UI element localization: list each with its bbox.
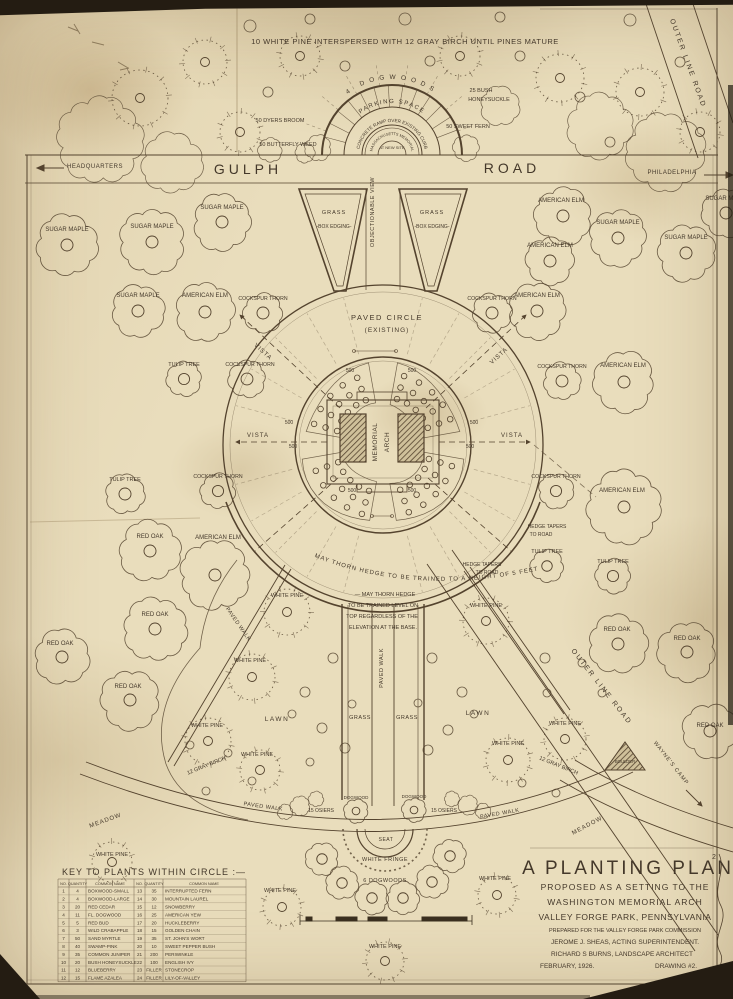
key-table-cell: 7 xyxy=(62,936,65,941)
headquarters-arrow-icon xyxy=(37,165,44,171)
plant-marker xyxy=(347,393,353,399)
deciduous-tree xyxy=(586,469,661,545)
label-grass-left: GRASS xyxy=(322,210,346,216)
deciduous-tree xyxy=(180,541,250,610)
shrub-mass xyxy=(290,796,310,816)
label-white-pine-6: WHITE PINE xyxy=(549,721,581,727)
label-american-elm-2: AMERICAN ELM xyxy=(527,243,573,249)
label-meadow-l: MEADOW xyxy=(89,812,123,829)
key-table-cell: 23 xyxy=(137,968,143,973)
plant-marker xyxy=(394,396,400,402)
label-hedge-note-4: ELEVATION AT THE BASE. xyxy=(349,625,417,631)
gray-birch-tree xyxy=(224,749,232,757)
label-500-4: 500 xyxy=(470,420,479,426)
key-table-cell: FILLER xyxy=(146,968,162,973)
key-table-cell: 14 xyxy=(137,897,143,902)
deciduous-tree xyxy=(194,194,251,252)
label-red-oak-6: RED OAK xyxy=(673,636,700,642)
label-red-oak-7: RED OAK xyxy=(696,723,723,729)
shrub-mass xyxy=(141,132,204,193)
key-table-cell: 21 xyxy=(137,952,143,957)
key-table-cell: SAND MYRTLE xyxy=(88,936,121,941)
arc-texts: 4 DOGWOODS PARKING SPACE CONCRETE RAMP O… xyxy=(314,74,539,583)
plant-marker xyxy=(415,475,421,481)
pine-tree xyxy=(533,50,587,106)
drawing-date: FEBRUARY, 1926. xyxy=(540,963,595,970)
label-sweet-fern: 50 SWEET FERN xyxy=(446,124,490,130)
gray-birch-tree xyxy=(317,723,327,733)
label-sugar-maple-1: SUGAR MAPLE xyxy=(45,227,88,233)
deciduous-tree xyxy=(533,187,590,245)
key-table-cell: SWAMP-PINK xyxy=(88,944,118,949)
shrub-mass xyxy=(625,113,705,192)
label-white-pine-9: WHITE PINE xyxy=(264,888,296,894)
deciduous-tree xyxy=(305,843,337,875)
drawing-prepared-for: PREPARED FOR THE VALLEY FORGE PARK COMMI… xyxy=(549,928,701,934)
label-headquarters: HEADQUARTERS xyxy=(67,164,123,170)
key-table-cell: 22 xyxy=(137,960,143,965)
label-white-pine-4: WHITE PINE xyxy=(241,752,273,758)
key-table-cell: 4 xyxy=(62,912,65,917)
key-table-cell: COMMON JUNIPER xyxy=(88,952,131,957)
pine-tree xyxy=(613,64,667,120)
key-table-cell: 200 xyxy=(150,952,158,957)
key-table-cell: 12 xyxy=(75,968,81,973)
key-table-cell: 35 xyxy=(151,889,157,894)
key-table-cell: WILD CRABAPPLE xyxy=(88,928,128,933)
scan-edge-right xyxy=(728,85,733,725)
label-6-dogwoods: 6 DOGWOODS xyxy=(363,878,407,884)
key-table-cell: SWEET PEPPER BUSH xyxy=(165,944,215,949)
label-white-pine-11: WHITE PINE xyxy=(369,944,401,950)
shrub-mass xyxy=(308,791,324,807)
deciduous-tree xyxy=(593,351,654,413)
drawing-number: DRAWING #2. xyxy=(655,963,697,970)
pencil-scribbles xyxy=(68,24,129,70)
key-table-cell: RED CEDAR xyxy=(88,905,116,910)
plant-marker xyxy=(328,393,334,399)
shrub-mass xyxy=(458,795,478,815)
plant-marker xyxy=(401,373,407,379)
grass-islands xyxy=(299,189,467,291)
plant-marker xyxy=(421,398,427,404)
label-red-oak-3: RED OAK xyxy=(46,641,73,647)
label-sugar-maple-3: SUGAR MAPLE xyxy=(200,205,243,211)
deciduous-tree xyxy=(682,704,733,758)
key-table-cell: 6 xyxy=(62,928,65,933)
title-block: A PLANTING PLAN PROPOSED AS A SETTING TO… xyxy=(522,848,733,972)
key-table-cell: PERIWINKLE xyxy=(165,952,193,957)
key-table-cell: 1 xyxy=(62,889,65,894)
gray-birch-tree xyxy=(605,137,615,147)
pine-tree xyxy=(179,37,231,88)
deciduous-tree xyxy=(35,629,90,684)
label-lawn-l: LAWN xyxy=(265,716,290,723)
plant-marker xyxy=(422,466,428,472)
gray-birch-tree xyxy=(186,741,194,749)
key-table-cell: BOXWOOD-LARGE xyxy=(88,897,130,902)
shrub-mass xyxy=(452,135,479,162)
key-table-cell: 3 xyxy=(62,905,65,910)
label-500-7: 500 xyxy=(348,488,357,494)
label-american-elm-1: AMERICAN ELM xyxy=(538,198,584,204)
label-white-pine-1: WHITE PINE xyxy=(271,593,303,599)
label-cockspur-3: COCKSPUR THORN xyxy=(225,362,274,368)
deciduous-tree xyxy=(36,214,98,276)
plant-marker xyxy=(313,468,319,474)
label-tulip-tree-4: TULIP TREE xyxy=(597,559,629,565)
planting-bed xyxy=(302,452,376,520)
label-gulph: GULPH xyxy=(214,161,282,177)
drawing-subtitle-2: WASHINGTON MEMORIAL ARCH xyxy=(547,897,702,907)
label-red-oak-5: RED OAK xyxy=(603,627,630,633)
plant-marker xyxy=(398,385,404,391)
label-osiers-r: 15 OSIERS xyxy=(431,808,458,814)
planting-plan-drawing: 10 WHITE PINE INTERSPERSED WITH 12 GRAY … xyxy=(0,0,733,999)
key-table-cell: 12 xyxy=(61,976,67,981)
plant-marker xyxy=(340,469,346,475)
gray-birch-tree xyxy=(305,14,315,24)
label-500-2: 500 xyxy=(408,368,417,374)
plant-marker xyxy=(406,509,412,515)
label-dyers-broom: 50 DYERS BROOM xyxy=(256,118,305,124)
label-waynes-camp: WAYNE'S CAMP xyxy=(652,740,690,786)
paper-creases xyxy=(30,2,237,522)
plant-marker xyxy=(413,407,419,413)
label-500-3: 500 xyxy=(285,420,294,426)
gray-birch-tree xyxy=(306,758,314,766)
seat-area xyxy=(343,829,427,871)
deciduous-tree xyxy=(176,283,235,342)
label-grass-strip-r: GRASS xyxy=(396,715,418,721)
key-table-cell: 19 xyxy=(137,936,143,941)
plant-marker xyxy=(318,406,324,412)
gray-birch-tree xyxy=(300,687,310,697)
key-table-cell: 13 xyxy=(137,889,143,894)
plant-marker xyxy=(359,386,365,392)
deciduous-tree xyxy=(326,866,359,899)
label-paved-circle: PAVED CIRCLE xyxy=(351,313,423,322)
label-bush-honeysuckle: HONEYSUCKLE xyxy=(468,97,510,103)
plant-marker xyxy=(331,495,337,501)
deciduous-tree xyxy=(386,881,420,915)
key-table-cell: 4 xyxy=(76,889,79,894)
key-table-cell: 20 xyxy=(75,905,81,910)
label-sugar-maple-7: SUGAR MAPLE xyxy=(116,293,159,299)
key-table-cell: BOXWOOD-SMALL xyxy=(88,889,130,894)
deciduous-tree xyxy=(119,519,181,580)
key-table-cell: 15 xyxy=(137,905,143,910)
label-dogwood-r: DOGWOOD xyxy=(402,794,427,799)
key-table-cell: HUCKLEBERRY xyxy=(165,920,199,925)
key-table-cell: 2 xyxy=(62,897,65,902)
gray-birch-tree xyxy=(263,87,273,97)
key-table-cell: 9 xyxy=(62,952,65,957)
gray-birch-tree xyxy=(427,653,437,663)
key-table-cell: 5 xyxy=(62,920,65,925)
gray-birch-tree xyxy=(457,687,467,697)
label-existing: (EXISTING) xyxy=(365,327,410,334)
key-table-cell: 20 xyxy=(151,920,157,925)
gray-birch-tree xyxy=(244,20,256,32)
arch-pier-east xyxy=(398,414,424,462)
lawn-boundary-left xyxy=(161,560,248,820)
drawing-subtitle-3: VALLEY FORGE PARK, PENNSYLVANIA xyxy=(539,912,712,922)
plant-marker xyxy=(425,425,431,431)
label-grass-right: GRASS xyxy=(420,210,444,216)
arch-pier-west xyxy=(340,414,366,462)
label-cockspur-1: COCKSPUR THORN xyxy=(238,296,287,302)
plant-marker xyxy=(433,491,439,497)
plant-marker xyxy=(410,390,416,396)
key-table-cell: 11 xyxy=(75,912,80,917)
gray-birch-tree xyxy=(515,51,525,61)
key-table-cell: 20 xyxy=(75,960,81,965)
label-500-1: 500 xyxy=(346,368,355,374)
label-hedge-note-3: TOP REGARDLESS OF THE xyxy=(346,614,418,620)
plant-marker xyxy=(323,425,329,431)
key-table-cell: 10 xyxy=(151,944,157,949)
label-paved-walk-diag-l: PAVED WALK xyxy=(224,606,252,642)
label-box-edging-right: -BOX EDGING- xyxy=(414,224,449,230)
pine-tree xyxy=(217,108,263,156)
label-tulip-tree-1: TULIP TREE xyxy=(168,362,200,368)
key-table-cell: 8 xyxy=(62,944,65,949)
deciduous-tree xyxy=(416,865,449,898)
central-paved-walk xyxy=(372,605,394,806)
deciduous-tree xyxy=(124,597,188,660)
deciduous-tree xyxy=(657,225,715,282)
plant-marker xyxy=(321,483,327,489)
deciduous-tree xyxy=(100,671,159,731)
key-table-header: NO. xyxy=(136,882,143,886)
key-table-cell: BUSH HONEYSUCKLE xyxy=(88,960,137,965)
key-table-cell: 30 xyxy=(151,897,157,902)
gray-birch-tree xyxy=(425,56,435,66)
label-white-pine-7: WHITE PINE xyxy=(492,741,524,747)
label-white-pine-10: WHITE PINE xyxy=(479,876,511,882)
key-table-cell: 15 xyxy=(75,976,81,981)
deciduous-tree xyxy=(120,210,184,275)
key-table-cell: 40 xyxy=(75,944,81,949)
label-hedge-tapers-1a: HEDGE TAPERS xyxy=(528,524,567,530)
key-to-plants-table: KEY TO PLANTS WITHIN CIRCLE :— NO.QUANTI… xyxy=(58,867,246,982)
label-philadelphia: PHILADELPHIA xyxy=(647,170,696,176)
key-table-cell: 20 xyxy=(137,944,143,949)
key-table-cell: 24 xyxy=(137,976,143,981)
label-hedge-note-1: — MAY THORN HEDGE xyxy=(355,592,416,598)
label-arch: ARCH xyxy=(384,432,391,452)
walks xyxy=(80,189,633,832)
plant-marker xyxy=(443,478,449,484)
label-lawn-r: LAWN xyxy=(466,710,491,717)
gray-birch-tree xyxy=(348,700,356,708)
label-white-pine-3: WHITE PINE xyxy=(191,723,223,729)
key-table-cell: AMERICAN YEW xyxy=(165,912,202,917)
deciduous-tree xyxy=(433,840,466,873)
gray-birch-tree xyxy=(495,12,505,22)
key-table-header: NO. xyxy=(60,882,67,886)
outer-line-road-top xyxy=(645,1,733,158)
scan-edge-bottom xyxy=(30,995,590,999)
label-500-6: 500 xyxy=(466,444,475,450)
key-table-cell: 25 xyxy=(151,912,157,917)
scale-bar xyxy=(300,915,472,925)
plant-marker xyxy=(421,502,427,508)
label-american-elm-4: AMERICAN ELM xyxy=(514,293,560,299)
label-cockspur-4: COCKSPUR THORN xyxy=(537,364,586,370)
key-table-cell: 10 xyxy=(61,960,67,965)
label-vista-e: VISTA xyxy=(501,433,523,439)
drawing-architect: RICHARD S BURNS, LANDSCAPE ARCHITECT xyxy=(551,951,693,958)
deciduous-tree xyxy=(355,881,389,914)
key-table-cell: FL. DOGWOOD xyxy=(88,912,122,917)
key-table-cell: FLAME AZALEA xyxy=(88,976,123,981)
gray-birch-tree xyxy=(443,725,453,735)
plant-marker xyxy=(366,488,372,494)
key-table-cell: 4 xyxy=(76,897,79,902)
label-paved-walk-bottom-r: PAVED WALK xyxy=(480,808,520,821)
key-table-cell: 3 xyxy=(76,928,79,933)
label-tulip-tree-3: TULIP TREE xyxy=(531,549,563,555)
plant-marker xyxy=(426,456,432,462)
key-table-cell: MOUNTAIN LAUREL xyxy=(165,897,209,902)
label-tulip-tree-2: TULIP TREE xyxy=(109,477,141,483)
label-american-elm-3: AMERICAN ELM xyxy=(182,293,228,299)
plant-marker xyxy=(416,380,422,386)
key-table-cell: ENGLISH IVY xyxy=(165,960,194,965)
gray-birch-tree xyxy=(540,653,550,663)
label-american-elm-5: AMERICAN ELM xyxy=(600,363,646,369)
key-table-header: COMMON NAME xyxy=(189,882,219,886)
label-gray-birch-l: 12 GRAY BIRCH xyxy=(186,756,227,777)
key-table-header: COMMON NAME xyxy=(95,882,125,886)
label-osiers-l: 15 OSIERS xyxy=(308,808,335,814)
label-red-oak-4: RED OAK xyxy=(114,684,141,690)
deciduous-tree xyxy=(590,210,647,267)
label-butterfly-weed: 50 BUTTERFLY WEED xyxy=(259,142,316,148)
label-at-new-site: AT NEW SITE xyxy=(379,145,405,150)
plant-marker xyxy=(404,401,410,407)
key-table-cell: STONECROP xyxy=(165,968,194,973)
key-table-cell: LILY-OF-VALLEY xyxy=(165,976,200,981)
key-table-title: KEY TO PLANTS WITHIN CIRCLE :— xyxy=(62,867,246,877)
plant-marker xyxy=(353,402,359,408)
label-red-oak-1: RED OAK xyxy=(136,534,163,540)
label-seat: SEAT xyxy=(379,837,394,843)
label-white-pine-2: WHITE PINE xyxy=(234,658,266,664)
deciduous-tree xyxy=(510,283,567,340)
label-grass-strip-l: GRASS xyxy=(349,715,371,721)
drawing-superintendent: JEROME J. SHEAS, ACTING SUPERINTENDENT. xyxy=(551,939,699,946)
key-table-cell: RED BUD xyxy=(88,920,109,925)
key-table-cell: 18 xyxy=(137,928,143,933)
pine-tree xyxy=(108,67,172,130)
key-table-cell: FILLER xyxy=(146,976,162,981)
label-road: ROAD xyxy=(484,160,540,176)
label-hedge-tapers-2a: HEDGE TAPERS xyxy=(463,562,502,568)
gray-birch-tree xyxy=(552,789,560,797)
label-bush-honeysuckle-qty: 25 BUSH xyxy=(470,88,493,94)
gray-birch-tree xyxy=(340,61,350,71)
drawing-title: A PLANTING PLAN xyxy=(522,858,733,879)
label-cockspur-6: COCKSPUR THORN xyxy=(531,474,580,480)
plant-marker xyxy=(407,482,413,488)
label-american-elm-7: AMERICAN ELM xyxy=(195,535,241,541)
note-pine-birch: 10 WHITE PINE INTERSPERSED WITH 12 GRAY … xyxy=(251,37,559,46)
key-table-cell: GOLDEN CHAIN xyxy=(165,928,200,933)
key-table-cell: INTERRUPTED FERN xyxy=(165,889,211,894)
label-objectionable-view: OBJECTIONABLE VIEW xyxy=(370,177,376,247)
key-table-cell: 35 xyxy=(75,952,81,957)
deciduous-tree xyxy=(589,614,648,673)
key-table-cell: 100 xyxy=(150,960,158,965)
label-paved-walk-center: PAVED WALK xyxy=(379,648,385,688)
key-table-header: QUANTITY xyxy=(68,882,88,886)
key-table-cell: 5 xyxy=(76,920,79,925)
label-boulder: BOULDER xyxy=(615,759,635,764)
label-hedge-note-2: TO BE TRAINED LEVEL ON xyxy=(348,603,418,609)
plant-marker xyxy=(449,463,455,469)
label-outer-line-road-top: OUTER LINE ROAD xyxy=(668,18,707,109)
plant-marker xyxy=(438,460,444,466)
plant-marker xyxy=(339,486,345,492)
key-table-cell: 17 xyxy=(137,920,143,925)
plant-marker xyxy=(359,511,365,517)
key-table-cell: 35 xyxy=(151,936,157,941)
label-meadow-r: MEADOW xyxy=(571,816,604,837)
key-table-header: QUANTITY xyxy=(144,882,164,886)
plant-marker xyxy=(344,505,350,511)
plant-marker xyxy=(402,498,408,504)
shrub-mass xyxy=(567,92,633,160)
gray-birch-tree xyxy=(328,653,338,663)
label-vista-nw: VISTA xyxy=(253,343,273,362)
key-table-cell: 11 xyxy=(61,968,66,973)
key-table-cell: ST. JOHN'S WORT xyxy=(165,936,205,941)
memorial-arch-plaza xyxy=(327,350,439,518)
gray-birch-tree xyxy=(399,13,411,25)
label-red-oak-2: RED OAK xyxy=(141,612,168,618)
white-fringe-ring xyxy=(343,829,427,871)
key-table-cell: BLUEBERRY xyxy=(88,968,116,973)
plant-marker xyxy=(447,416,453,422)
gray-birch-tree xyxy=(202,787,210,795)
label-american-elm-6: AMERICAN ELM xyxy=(599,488,645,494)
label-memorial: MEMORIAL xyxy=(372,423,379,462)
key-table-cell: SNOWBERRY xyxy=(165,905,195,910)
key-table-cell: 50 xyxy=(75,936,81,941)
hedge-lines xyxy=(342,604,424,800)
label-box-edging-left: -BOX EDGING- xyxy=(316,224,351,230)
plant-marker xyxy=(334,428,340,434)
label-white-pine-8: WHITE PINE xyxy=(96,852,128,858)
plant-marker xyxy=(311,421,317,427)
label-vista-ne: VISTA xyxy=(489,347,509,366)
label-sugar-maple-4: SUGAR MAPLE xyxy=(596,220,639,226)
plant-marker xyxy=(340,383,346,389)
deciduous-tree xyxy=(657,623,715,683)
label-cockspur-5: COCKSPUR THORN xyxy=(193,474,242,480)
plant-marker xyxy=(430,409,436,415)
label-cockspur-2: COCKSPUR THORN xyxy=(467,296,516,302)
gray-birch-tree xyxy=(624,14,636,26)
boulder-marker xyxy=(605,742,645,770)
plant-marker xyxy=(429,390,435,396)
plant-marker xyxy=(363,500,369,506)
label-outer-line-road-bottom: OUTER LINE ROAD xyxy=(569,648,633,727)
label-500-8: 500 xyxy=(408,488,417,494)
